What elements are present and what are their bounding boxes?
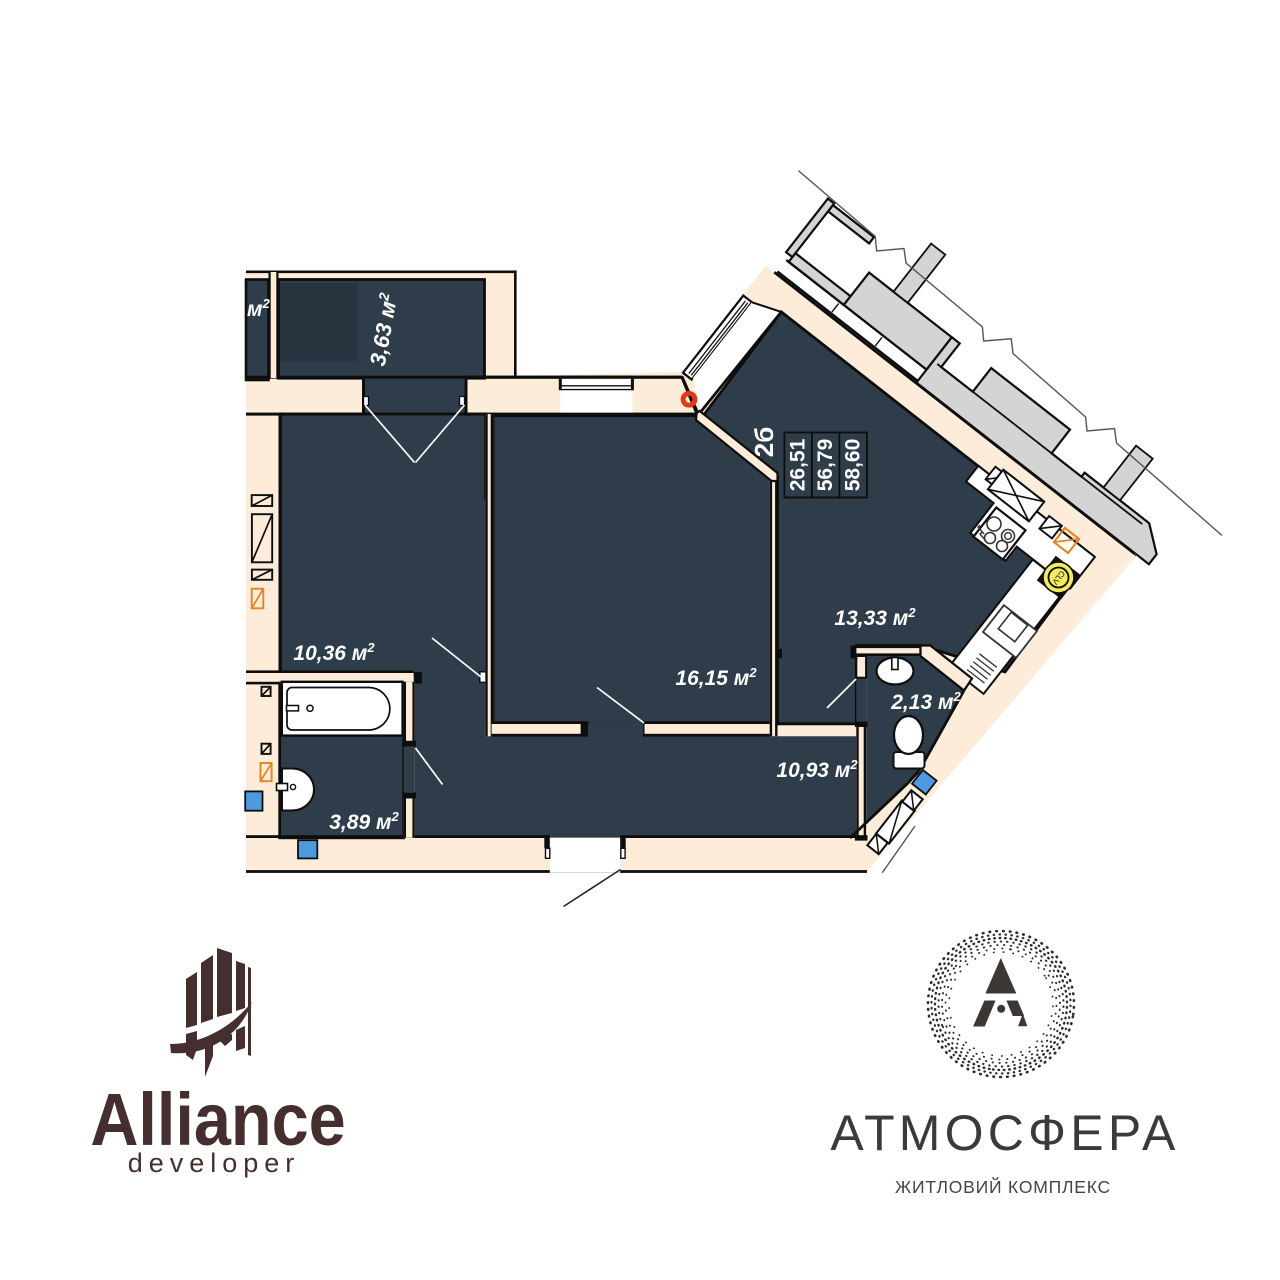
svg-text:26,51: 26,51 (787, 438, 810, 491)
svg-text:16,15 м2: 16,15 м2 (675, 665, 757, 690)
svg-text:ЖИТЛОВИЙ КОМПЛЕКС: ЖИТЛОВИЙ КОМПЛЕКС (895, 1176, 1111, 1197)
svg-text:10,93 м2: 10,93 м2 (776, 757, 858, 782)
svg-text:58,60: 58,60 (842, 439, 865, 492)
svg-text:2б: 2б (749, 427, 779, 458)
svg-text:2,13 м2: 2,13 м2 (890, 689, 961, 714)
svg-text:developer: developer (128, 1148, 301, 1178)
svg-text:АТМОСФЕРА: АТМОСФЕРА (830, 1105, 1179, 1161)
svg-text:10,36 м2: 10,36 м2 (293, 640, 375, 665)
svg-text:13,33 м2: 13,33 м2 (834, 605, 916, 630)
svg-text:56,79: 56,79 (814, 439, 837, 492)
svg-text:3,89 м2: 3,89 м2 (329, 809, 399, 834)
